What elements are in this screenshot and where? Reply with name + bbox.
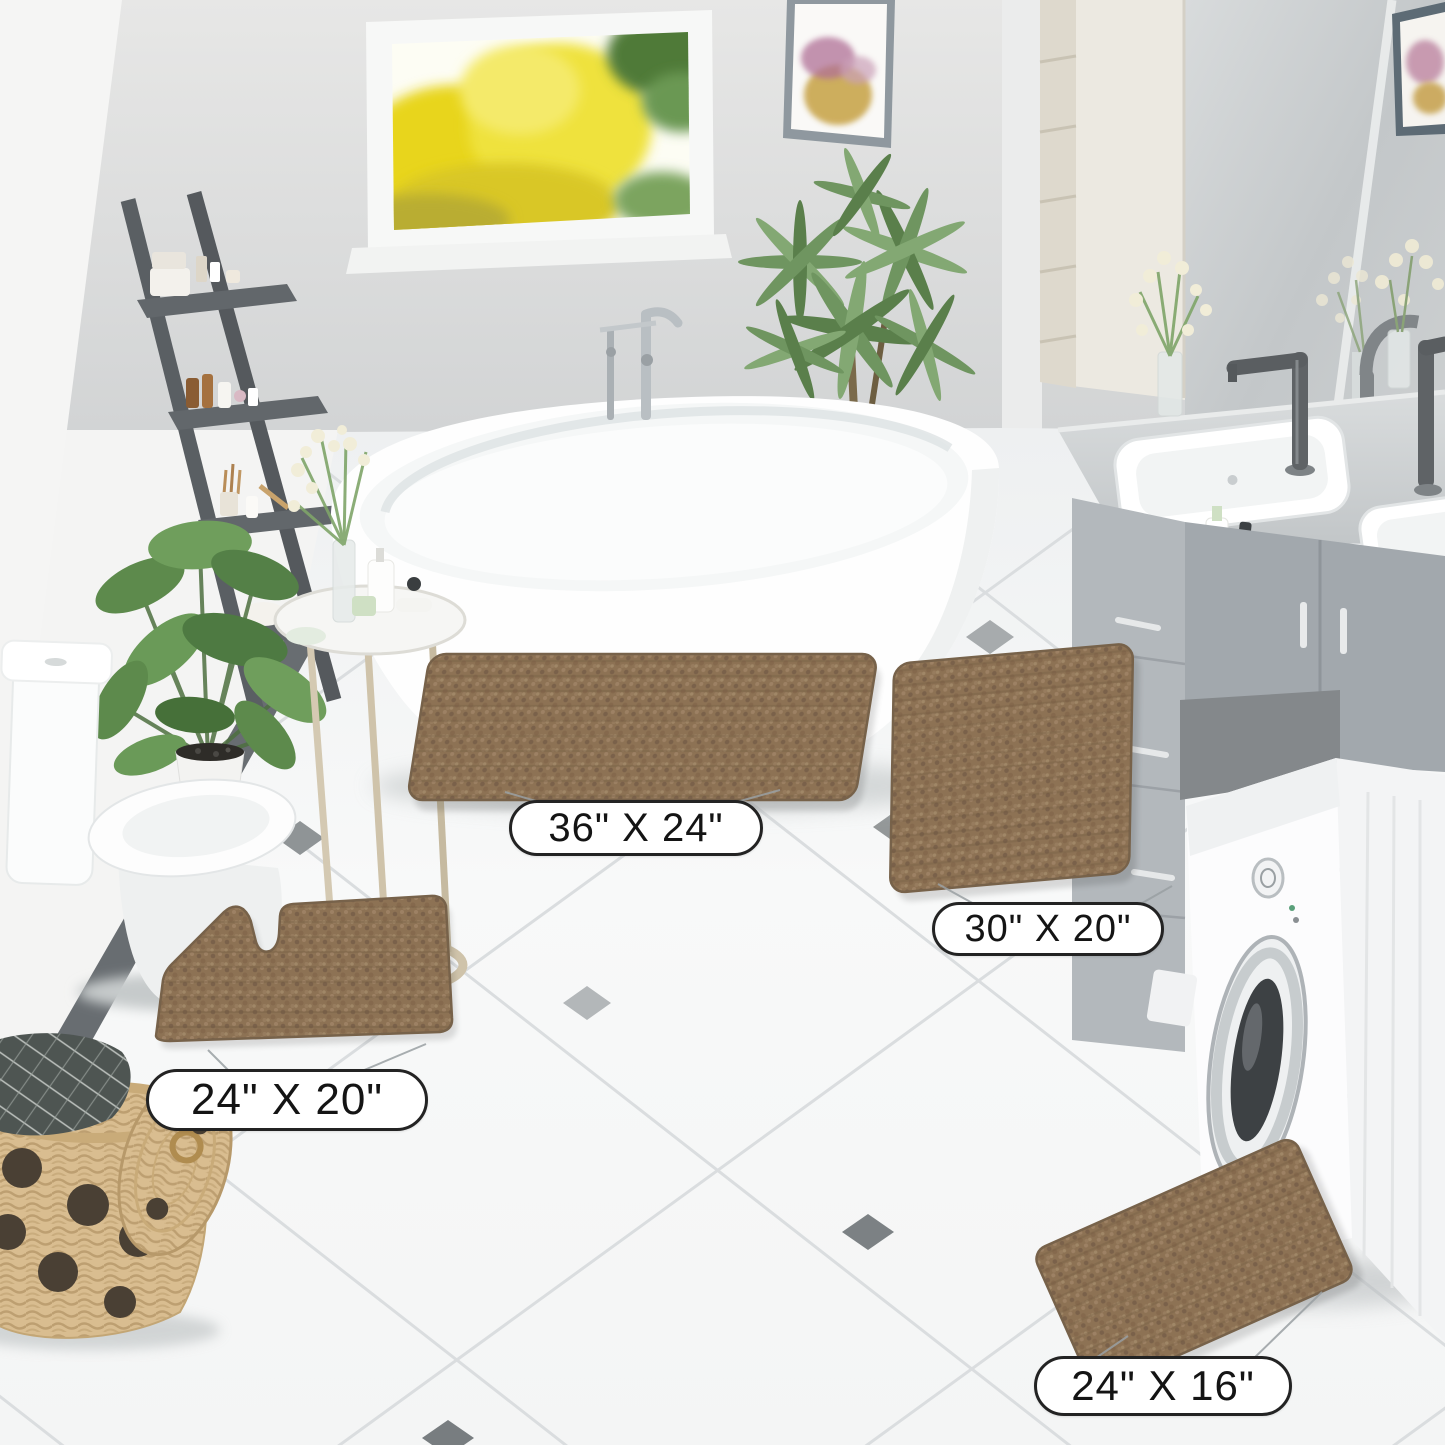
wall-art-watercolor-left — [783, 0, 895, 148]
washer-tray-shelf — [1146, 969, 1198, 1027]
size-label-36x24: 36" X 24" — [509, 800, 763, 856]
bathroom-scene — [0, 0, 1445, 1445]
bathroom-product-photo: 36" X 24" 30" X 20" 24" X 20" 24" X 16" — [0, 0, 1445, 1445]
wall-art-watercolor-right — [1392, 2, 1445, 136]
wall-corner-highlight — [1002, 0, 1042, 438]
chenille-bath-rug-30x20 — [890, 642, 1140, 903]
size-label-24x20: 24" X 20" — [146, 1069, 428, 1131]
size-label-24x16: 24" X 16" — [1034, 1356, 1292, 1416]
size-label-30x20: 30" X 20" — [932, 902, 1164, 956]
window-autumn-trees — [346, 10, 732, 274]
chenille-bath-rug-36x24 — [405, 654, 885, 811]
